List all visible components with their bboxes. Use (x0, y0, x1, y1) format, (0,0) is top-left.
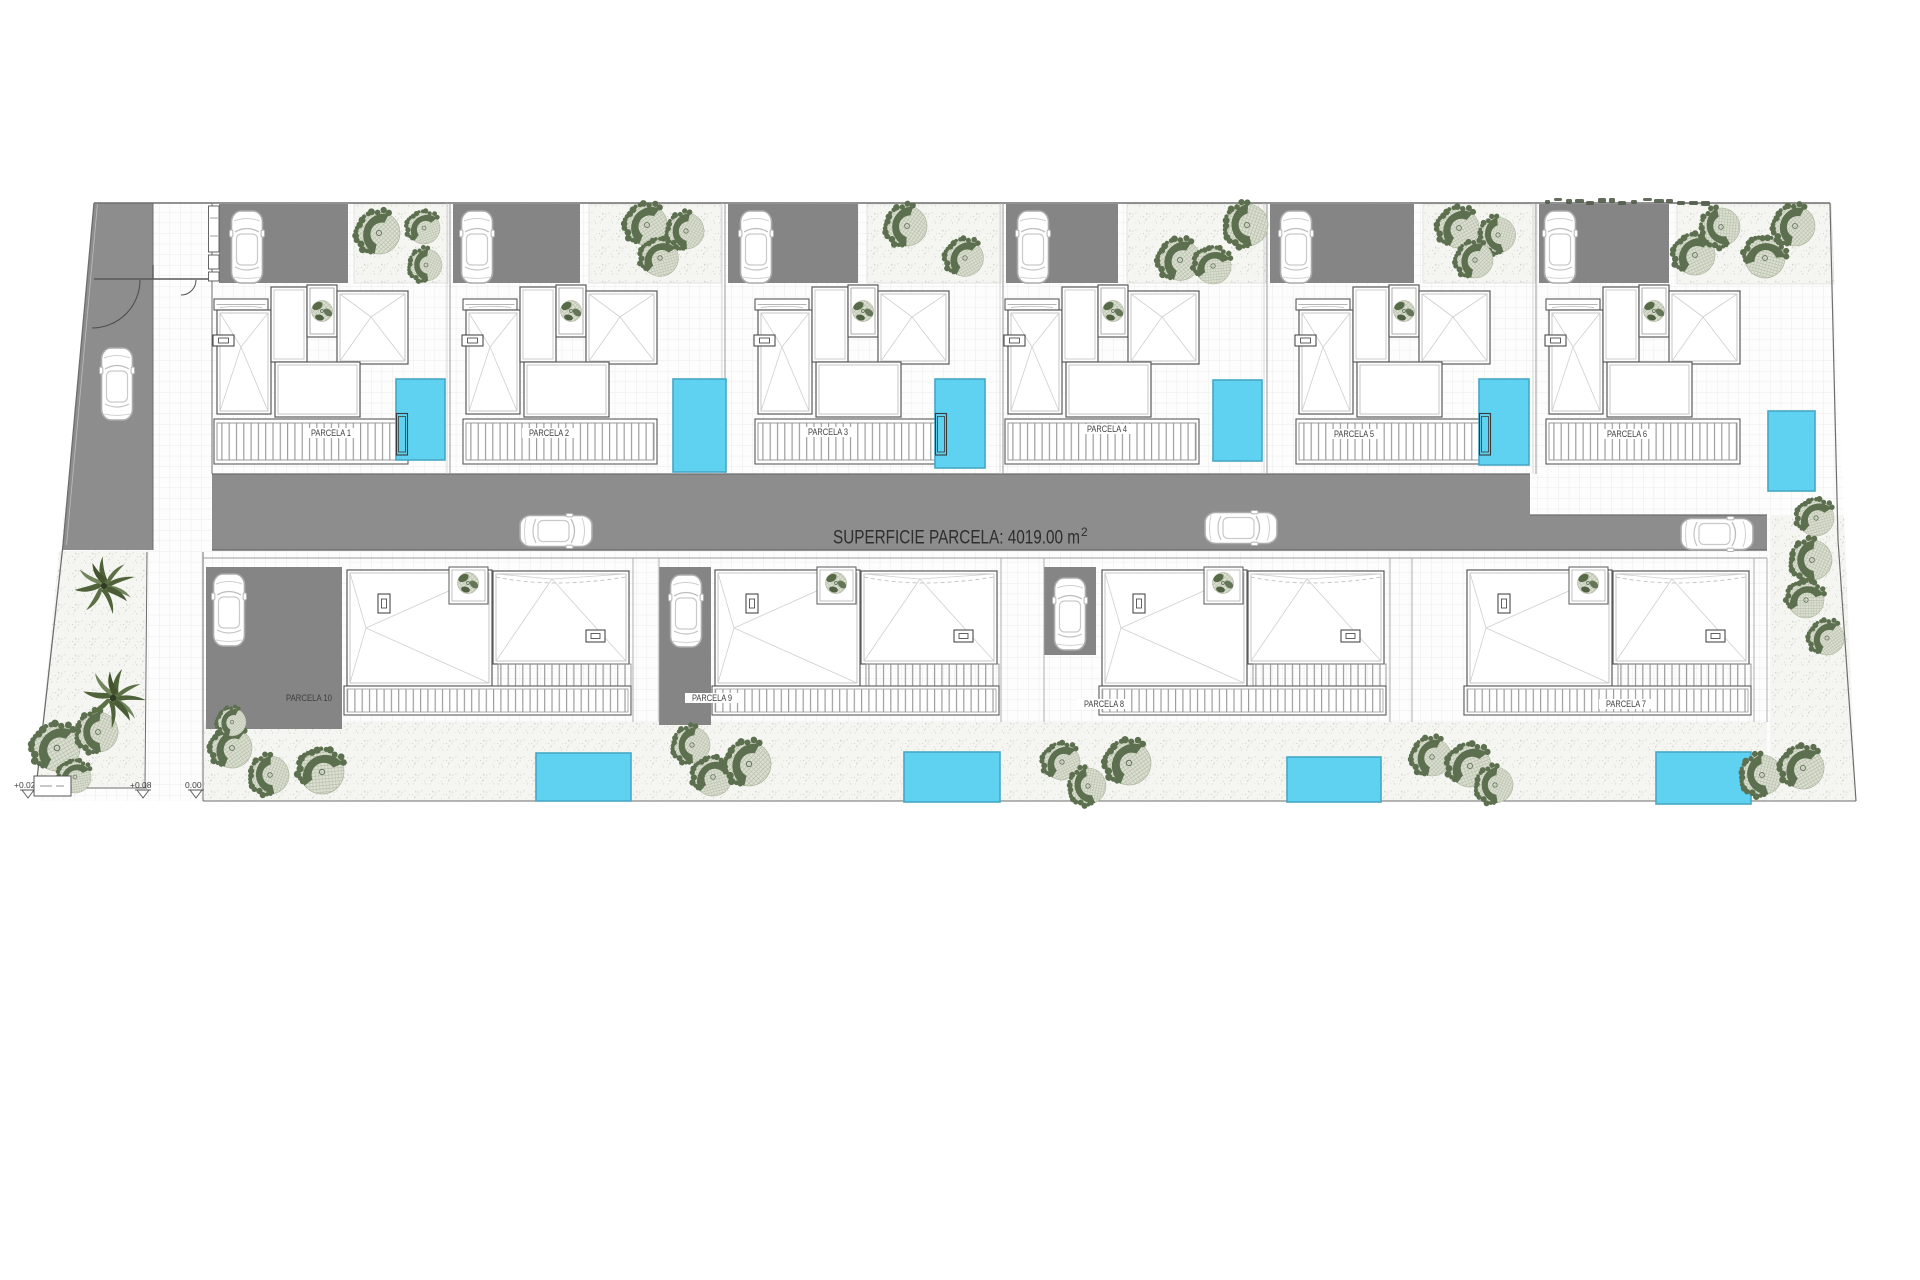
svg-text:+0.08: +0.08 (130, 780, 152, 790)
svg-text:PARCELA 10: PARCELA 10 (286, 693, 332, 703)
svg-text:PARCELA 8: PARCELA 8 (1084, 699, 1124, 709)
svg-text:PARCELA 6: PARCELA 6 (1607, 429, 1647, 439)
svg-text:PARCELA 7: PARCELA 7 (1606, 699, 1646, 709)
svg-text:PARCELA 3: PARCELA 3 (808, 427, 848, 437)
svg-text:PARCELA 5: PARCELA 5 (1334, 429, 1374, 439)
svg-text:SUPERFICIE PARCELA: 4019.00 m: SUPERFICIE PARCELA: 4019.00 m (833, 528, 1080, 549)
svg-text:0.00: 0.00 (185, 780, 202, 790)
svg-text:2: 2 (1081, 525, 1088, 539)
svg-text:PARCELA 9: PARCELA 9 (692, 693, 732, 703)
svg-text:PARCELA 4: PARCELA 4 (1087, 424, 1127, 434)
svg-text:+0.02: +0.02 (14, 780, 36, 790)
svg-text:PARCELA 1: PARCELA 1 (311, 428, 351, 438)
svg-text:PARCELA 2: PARCELA 2 (529, 428, 569, 438)
